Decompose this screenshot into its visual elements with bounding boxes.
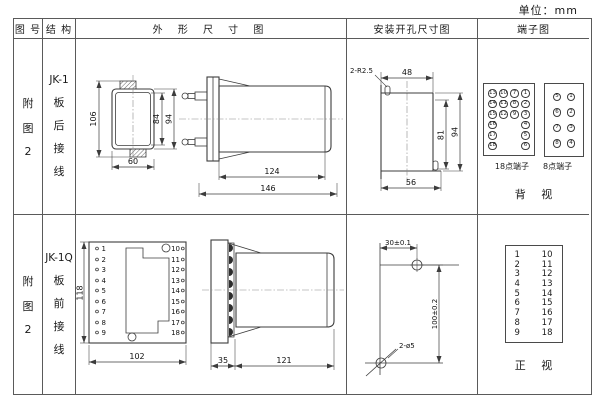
jk1q-outline-drawing: 1 2 3 4 5 6 7 8 9 10 11 12 13 [76, 215, 347, 394]
dim-label-100: 100±0.2 [431, 299, 439, 329]
terminal-circle: 11 [499, 100, 508, 109]
outline-cell-jk1: 106 84 94 60 [76, 39, 347, 215]
terminal-circle: 8 [510, 100, 519, 109]
panel-terminals-left: 1 2 3 4 5 6 7 8 9 [96, 245, 107, 337]
wiring-char: 接 [54, 318, 65, 334]
panel-terminal-label: 13 [171, 277, 180, 285]
dim-label-48: 48 [402, 68, 412, 77]
wiring-char: 线 [54, 341, 65, 357]
structure-cell-jk1q: JK-1Q 板 前 接 线 [43, 215, 76, 394]
terminal-circle: 4 [567, 139, 576, 148]
dim-label-118: 118 [76, 285, 85, 300]
jk1q-side-view: 35 121 [202, 240, 344, 370]
terminal-circle: 6 [521, 142, 530, 151]
hole-label-2d5: 2-ø5 [399, 342, 415, 350]
dim-label-102: 102 [129, 352, 144, 361]
header-fig-no: 图 号 [14, 19, 43, 39]
fig-no-char: 图 [23, 120, 34, 136]
terminal-number: 17 [542, 319, 553, 328]
panel-hole [128, 333, 136, 341]
panel-terminal-label: 5 [102, 287, 106, 295]
terminal-number: 6 [515, 299, 520, 308]
terminal-circle: 3 [567, 124, 576, 133]
dim-label-146: 146 [260, 184, 275, 193]
terminal-circle: 13 [488, 89, 497, 98]
fig-no-char: 2 [25, 323, 32, 336]
fig-no-char: 2 [25, 145, 32, 158]
panel-terminal-label: 14 [171, 287, 180, 295]
terminal-number: 8 [515, 319, 520, 328]
mounting-cell-jk1q: 30±0.1 100±0.2 2-ø5 [347, 215, 478, 394]
panel-terminal-label: 16 [171, 308, 180, 316]
terminal-circle: 9 [510, 110, 519, 119]
wiring-char: 线 [54, 163, 65, 179]
fig-no-char: 附 [23, 273, 34, 289]
label-18-point: 18点端子 [495, 161, 529, 172]
dim-label-94: 94 [165, 114, 174, 124]
dim-label-81: 81 [437, 130, 446, 140]
panel-terminal-label: 17 [171, 319, 180, 327]
terminal-circle: 10 [499, 89, 508, 98]
terminal-circle: 7 [553, 124, 562, 133]
panel-terminal-label: 11 [171, 256, 180, 264]
terminal-circle: 5 [553, 93, 562, 102]
fig-no-char: 图 [23, 298, 34, 314]
terminal-circle: 15 [488, 110, 497, 119]
header-outline: 外 形 尺 寸 图 [76, 19, 347, 39]
terminal-circle: 6 [553, 108, 562, 117]
panel-terminals-right: 10 11 12 13 14 15 16 17 18 [171, 245, 184, 337]
view-label-front: 正 视 [509, 357, 559, 373]
fig-no-cell-jk1q: 附 图 2 [14, 215, 43, 394]
terminal-number: 10 [542, 251, 553, 260]
dim-label-84: 84 [152, 114, 161, 124]
panel-terminal-label: 10 [171, 245, 180, 253]
panel-terminal-label: 6 [102, 298, 107, 306]
panel-terminal-label: 18 [171, 329, 180, 337]
terminal-circle: 1 [521, 89, 530, 98]
panel-terminal-label: 1 [102, 245, 106, 253]
terminal-numbers-right: 10 11 12 13 14 15 16 17 18 [542, 251, 553, 337]
dim-label-124: 124 [264, 167, 279, 176]
terminal-circle: 1 [567, 93, 576, 102]
terminal-number: 7 [515, 309, 520, 318]
jk1q-front-view: 1 2 3 4 5 6 7 8 9 10 11 12 13 [76, 242, 186, 365]
terminal-number: 18 [542, 329, 553, 338]
panel-terminal-label: 4 [102, 277, 107, 285]
terminal-circle: 3 [521, 110, 530, 119]
terminal-circle: 8 [553, 139, 562, 148]
jk1-cutout-drawing: 48 2-R2.5 81 94 56 [347, 39, 478, 215]
unit-label: 单位：mm [519, 2, 578, 18]
terminal-number: 2 [515, 261, 520, 270]
terminal-number: 5 [515, 290, 520, 299]
terminal-number: 3 [515, 270, 520, 279]
notch-label-2r25: 2-R2.5 [350, 67, 373, 75]
header-mounting: 安装开孔尺寸图 [347, 19, 478, 39]
panel-terminal-label: 15 [171, 298, 180, 306]
terminal-number: 15 [542, 299, 553, 308]
panel-terminal-label: 7 [102, 308, 106, 316]
terminal-circle: 4 [521, 121, 530, 130]
wiring-char: 板 [54, 94, 65, 110]
panel-terminal-label: 12 [171, 266, 180, 274]
panel-terminal-label: 9 [102, 329, 106, 337]
view-label-back: 背 视 [509, 186, 559, 202]
terminal-number: 12 [542, 270, 553, 279]
terminal-cell-jk1: 13 10 7 1 14 11 8 2 15 12 9 3 16 4 17 [478, 39, 589, 215]
wiring-char: 接 [54, 140, 65, 156]
wiring-char: 前 [54, 295, 65, 311]
drawing-table: 图 号 结 构 外 形 尺 寸 图 安装开孔尺寸图 端子图 附 图 2 JK-1… [13, 18, 592, 395]
terminal-circle: 5 [521, 131, 530, 140]
terminal-circle: 14 [488, 100, 497, 109]
mounting-cell-jk1: 48 2-R2.5 81 94 56 [347, 39, 478, 215]
panel-terminal-label: 8 [102, 319, 106, 327]
terminal-number: 16 [542, 309, 553, 318]
terminal-circle: 12 [499, 110, 508, 119]
model-label-jk1q: JK-1Q [45, 252, 73, 264]
terminal-block-8: 5 1 6 2 7 3 8 4 [544, 83, 584, 157]
terminal-circle: 7 [510, 89, 519, 98]
terminal-number: 9 [515, 329, 520, 338]
dim-label-30: 30±0.1 [385, 239, 411, 247]
terminal-circle: 17 [488, 131, 497, 140]
dim-label-121: 121 [276, 356, 291, 365]
jk1-side-view: 124 146 [179, 77, 343, 197]
fig-no-char: 附 [23, 95, 34, 111]
terminal-circle: 16 [488, 121, 497, 130]
dim-label-106: 106 [89, 111, 98, 126]
panel-hole [162, 244, 170, 252]
terminal-number: 11 [542, 261, 553, 270]
label-8-point: 8点端子 [543, 161, 572, 172]
model-label-jk1: JK-1 [49, 74, 68, 86]
terminal-number: 1 [515, 251, 520, 260]
terminal-number: 4 [515, 280, 520, 289]
terminal-number-box: 1 2 3 4 5 6 7 8 9 10 11 12 13 14 15 [505, 245, 563, 343]
structure-cell-jk1: JK-1 板 后 接 线 [43, 39, 76, 215]
terminal-block-18: 13 10 7 1 14 11 8 2 15 12 9 3 16 4 17 [483, 83, 535, 156]
notch-r25 [385, 86, 390, 95]
panel-terminal-label: 2 [102, 256, 106, 264]
terminal-number: 14 [542, 290, 553, 299]
panel-terminal-label: 3 [102, 266, 106, 274]
dim-label-35: 35 [218, 356, 228, 365]
terminal-boxes: 13 10 7 1 14 11 8 2 15 12 9 3 16 4 17 [483, 83, 584, 157]
fig-no-cell-jk1: 附 图 2 [14, 39, 43, 215]
header-structure: 结 构 [43, 19, 76, 39]
mounting-stud [182, 138, 207, 146]
dim-label-60: 60 [128, 157, 138, 166]
outline-cell-jk1q: 1 2 3 4 5 6 7 8 9 10 11 12 13 [76, 215, 347, 394]
terminal-circle: 18 [488, 142, 497, 151]
jk1q-cutout-drawing: 30±0.1 100±0.2 2-ø5 [347, 215, 478, 394]
dim-label-56: 56 [406, 178, 416, 187]
terminal-circle: 2 [567, 108, 576, 117]
terminal-number: 13 [542, 280, 553, 289]
mounting-stud [182, 92, 207, 100]
notch-r25 [433, 161, 438, 170]
jk1-outline-drawing: 106 84 94 60 [76, 39, 347, 215]
header-terminal: 端子图 [478, 19, 589, 39]
terminal-numbers-left: 1 2 3 4 5 6 7 8 9 [515, 251, 520, 337]
terminal-circle: 2 [521, 100, 530, 109]
jk1q-holes: 30±0.1 100±0.2 2-ø5 [365, 239, 459, 376]
wiring-char: 板 [54, 272, 65, 288]
terminal-cell-jk1q: 1 2 3 4 5 6 7 8 9 10 11 12 13 14 15 [478, 215, 589, 394]
terminal-block-labels: 18点端子 8点端子 [495, 161, 572, 172]
datasheet-page: 单位：mm 图 号 结 构 外 形 尺 寸 图 安装开孔尺寸图 端子图 附 图 … [0, 0, 600, 400]
wiring-char: 后 [54, 117, 65, 133]
dim-label-94b: 94 [451, 127, 460, 137]
jk1-front-view: 106 84 94 60 [89, 75, 177, 170]
jk1-cutout: 48 2-R2.5 81 94 56 [350, 67, 463, 191]
